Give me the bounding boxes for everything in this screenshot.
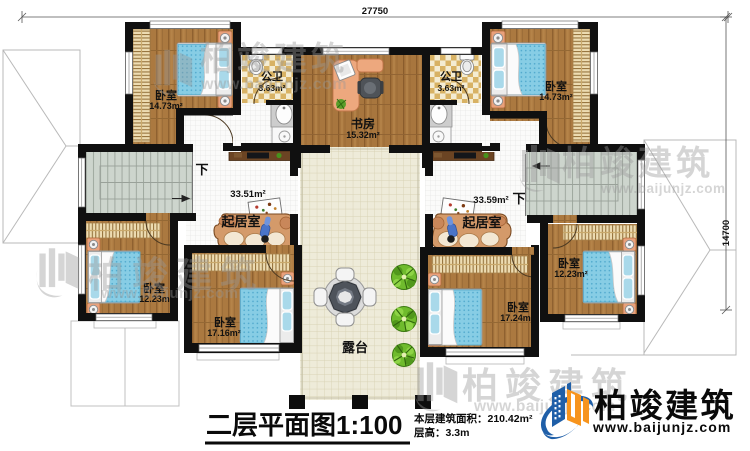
svg-text:柏竣建筑: 柏竣建筑: [200, 40, 348, 77]
svg-text:下: 下: [195, 162, 208, 177]
svg-text:15.32m²: 15.32m²: [346, 130, 380, 140]
svg-text:33.51m²: 33.51m²: [230, 189, 265, 200]
svg-text:17.16m²: 17.16m²: [207, 328, 241, 338]
svg-text:33.59m²: 33.59m²: [473, 195, 508, 206]
svg-text:27750: 27750: [362, 6, 388, 17]
svg-text:卧室: 卧室: [558, 256, 580, 270]
svg-text:二层平面图1:100: 二层平面图1:100: [206, 410, 403, 440]
svg-text:14.73m²: 14.73m²: [539, 92, 573, 102]
svg-text:下: 下: [512, 191, 525, 206]
svg-text:露台: 露台: [342, 340, 368, 355]
svg-text:3.63m²: 3.63m²: [438, 83, 465, 93]
svg-text:书房: 书房: [351, 116, 375, 131]
svg-text:17.24m²: 17.24m²: [500, 313, 534, 323]
svg-text:12.23m²: 12.23m²: [554, 269, 588, 279]
svg-text:www.baijunjz.com: www.baijunjz.com: [100, 285, 238, 302]
svg-text:公卫: 公卫: [440, 70, 462, 83]
svg-text:起居室: 起居室: [220, 214, 260, 229]
svg-text:www.baijunjz.com: www.baijunjz.com: [600, 181, 726, 196]
svg-text:www.baijunjz.com: www.baijunjz.com: [200, 76, 347, 93]
svg-text:www.baijunjz.com: www.baijunjz.com: [592, 419, 731, 435]
svg-text:柏竣建筑: 柏竣建筑: [562, 144, 714, 183]
svg-text:卧室: 卧室: [507, 300, 529, 314]
svg-text:卧室: 卧室: [214, 315, 236, 329]
svg-text:本层建筑面积：210.42m²: 本层建筑面积：210.42m²: [414, 412, 533, 425]
svg-text:14700: 14700: [721, 220, 732, 246]
svg-text:起居室: 起居室: [461, 215, 501, 230]
svg-text:层高：3.3m: 层高：3.3m: [414, 426, 469, 439]
svg-text:卧室: 卧室: [545, 79, 567, 93]
